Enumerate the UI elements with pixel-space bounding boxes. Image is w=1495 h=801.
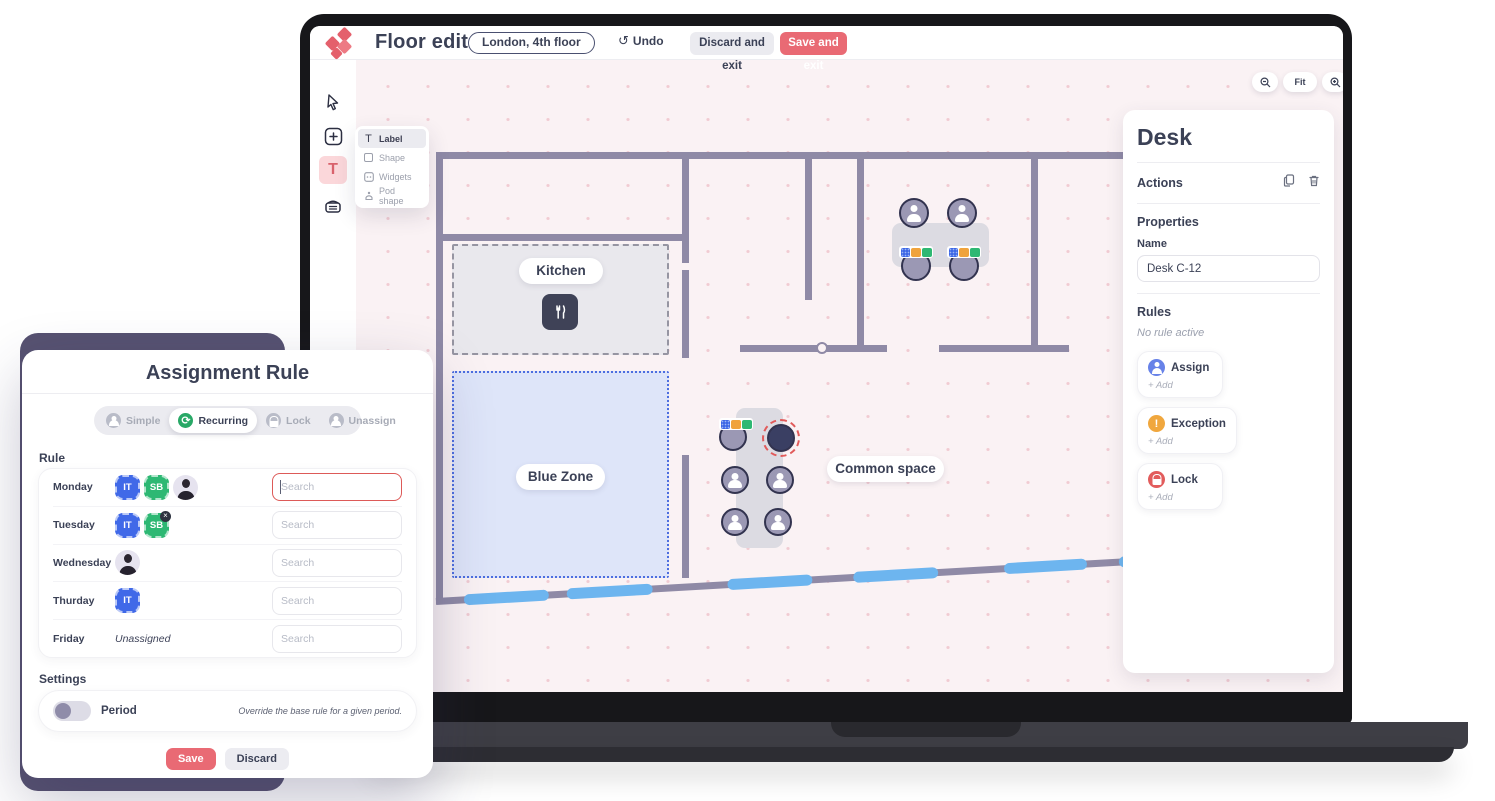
select-tool-button[interactable] — [319, 88, 347, 116]
modal-actions: Save Discard — [22, 748, 433, 770]
person-icon — [768, 468, 792, 492]
wall-room-divider — [439, 234, 687, 241]
flyout-item-widgets[interactable]: Widgets — [358, 167, 426, 186]
flyout-item-pod-shape[interactable]: Pod shape — [358, 186, 426, 205]
person-icon — [949, 200, 975, 226]
period-label: Period — [101, 705, 137, 717]
assignee-avatar[interactable] — [115, 550, 140, 575]
add-label: + Add — [1148, 492, 1212, 503]
discard-and-exit-button[interactable]: Discard and exit — [690, 32, 774, 55]
desk-tag-strip — [947, 246, 981, 258]
lock-rule-button[interactable]: Lock + Add — [1137, 463, 1223, 510]
rule-buttons: Assign + Add Exception + Add Lock + Add — [1137, 351, 1320, 510]
wall-vertical — [682, 159, 689, 263]
divider — [1137, 293, 1320, 294]
common-space-label: Common space — [835, 461, 936, 476]
app-screen: Kitchen Blue Zone Common space — [310, 26, 1343, 692]
assign-rule-button[interactable]: Assign + Add — [1137, 351, 1223, 398]
kitchen-label: Kitchen — [536, 263, 586, 278]
rule-row-monday: Monday IT SB — [53, 469, 402, 507]
label-icon: T — [363, 133, 374, 145]
divider — [22, 393, 433, 394]
desk-seat[interactable] — [766, 466, 794, 494]
properties-heading: Properties — [1137, 215, 1320, 229]
undo-button[interactable]: ↺Undo — [618, 34, 664, 49]
wall-horizontal — [939, 345, 1069, 352]
tab-unassign[interactable]: Unassign — [320, 408, 405, 433]
blue-zone-label: Blue Zone — [528, 469, 593, 484]
desk-tag-strip — [899, 246, 933, 258]
text-tool-button[interactable]: T — [319, 156, 347, 184]
kitchen-label-pill[interactable]: Kitchen — [519, 258, 603, 284]
add-label: + Add — [1148, 380, 1212, 391]
assignee-search-input[interactable] — [272, 511, 402, 539]
wall-vertical — [682, 455, 689, 578]
rule-row-wednesday: Wednesday — [53, 545, 402, 583]
save-button[interactable]: Save — [166, 748, 216, 770]
tab-simple[interactable]: Simple — [97, 408, 169, 433]
window-segment — [464, 589, 549, 605]
assignee-badge[interactable]: SB — [144, 475, 169, 500]
remove-badge-button[interactable]: × — [160, 511, 171, 522]
save-and-exit-button[interactable]: Save and exit — [780, 32, 847, 55]
exception-icon — [1148, 415, 1165, 432]
flyout-item-label[interactable]: T Label — [358, 129, 426, 148]
period-setting-card: Period Override the base rule for a give… — [38, 690, 417, 732]
rule-row-thursday: Thurday IT — [53, 582, 402, 620]
kitchen-cutlery-icon — [542, 294, 578, 330]
desk-tag-strip — [719, 418, 753, 430]
window-segment — [1004, 558, 1087, 574]
tab-lock[interactable]: Lock — [257, 408, 320, 433]
zoom-out-button[interactable] — [1252, 72, 1278, 92]
person-icon — [766, 510, 790, 534]
unassign-person-icon — [329, 413, 344, 428]
person-icon — [901, 200, 927, 226]
app-logo — [324, 28, 354, 58]
door-pivot — [816, 342, 828, 354]
delete-icon[interactable] — [1308, 174, 1320, 192]
desk-seat[interactable] — [947, 198, 977, 228]
modal-title: Assignment Rule — [22, 362, 433, 385]
window-segment — [566, 583, 652, 599]
assignee-badge[interactable]: IT — [115, 513, 140, 538]
floor-selector-pill[interactable]: London, 4th floor — [468, 32, 595, 54]
desk-name-input[interactable] — [1137, 255, 1320, 282]
assign-icon — [1148, 359, 1165, 376]
desk-properties-panel: Desk Actions Properties Name Rules No ru… — [1123, 110, 1334, 673]
rule-section-heading: Rule — [39, 451, 65, 465]
assignee-search-input[interactable] — [272, 587, 402, 615]
lock-icon — [1148, 471, 1165, 488]
recurring-icon — [178, 413, 193, 428]
pod-shape-icon — [363, 191, 374, 201]
assignee-search-input[interactable] — [272, 549, 402, 577]
unassigned-text: Unassigned — [115, 633, 170, 645]
assignee-badge[interactable]: SB× — [144, 513, 169, 538]
panel-title: Desk — [1137, 124, 1320, 151]
desk-seat[interactable] — [764, 508, 792, 536]
add-tool-button[interactable] — [319, 122, 347, 150]
assignment-rule-modal: Assignment Rule Simple Recurring Lock Un… — [22, 350, 433, 778]
desk-seat[interactable] — [721, 508, 749, 536]
wall-top — [436, 152, 1131, 159]
zoom-fit-button[interactable]: Fit — [1283, 72, 1317, 92]
assignee-search-input[interactable] — [272, 625, 402, 653]
simple-person-icon — [106, 413, 121, 428]
wall-vertical — [1031, 159, 1038, 350]
duplicate-icon[interactable] — [1283, 174, 1295, 192]
wall-horizontal — [740, 345, 887, 352]
widgets-icon — [363, 172, 374, 182]
weekly-rule-card: Monday IT SB Tuesday IT SB× Wednesday Th… — [38, 468, 417, 658]
lock-icon — [266, 413, 281, 428]
library-tool-button[interactable] — [319, 192, 347, 220]
person-icon — [723, 510, 747, 534]
wall-vertical — [682, 270, 689, 358]
assignee-search-input[interactable] — [272, 473, 402, 501]
insert-flyout-menu: T Label Shape Widgets Pod shape — [355, 126, 429, 208]
add-label: + Add — [1148, 436, 1226, 447]
laptop-base — [355, 722, 1468, 749]
wall-left — [436, 152, 443, 604]
toggle-knob — [55, 703, 71, 719]
editor-topbar: Floor editor London, 4th floor ↺Undo Dis… — [310, 26, 1343, 60]
common-space-label-pill[interactable]: Common space — [827, 456, 944, 482]
assignee-avatar[interactable] — [173, 475, 198, 500]
tab-recurring[interactable]: Recurring — [169, 408, 257, 433]
rule-row-friday: Friday Unassigned — [53, 620, 402, 657]
laptop-base-lip — [368, 747, 1454, 762]
rules-heading: Rules — [1137, 305, 1320, 319]
wall-vertical — [805, 159, 812, 300]
zoom-in-button[interactable] — [1322, 72, 1343, 92]
flyout-item-shape[interactable]: Shape — [358, 148, 426, 167]
exception-rule-button[interactable]: Exception + Add — [1137, 407, 1237, 454]
period-hint: Override the base rule for a given perio… — [238, 706, 402, 716]
divider — [1137, 203, 1320, 204]
name-field-label: Name — [1137, 238, 1320, 250]
blue-zone-label-pill[interactable]: Blue Zone — [516, 464, 605, 490]
text-caret — [280, 480, 281, 494]
assignee-badge[interactable]: IT — [115, 588, 140, 613]
actions-heading: Actions — [1137, 176, 1183, 190]
window-segment — [727, 574, 812, 590]
rule-type-tabs: Simple Recurring Lock Unassign — [94, 406, 361, 435]
wall-vertical — [857, 159, 864, 350]
desk-seat[interactable] — [899, 198, 929, 228]
discard-button[interactable]: Discard — [225, 748, 289, 770]
shape-icon — [363, 153, 374, 162]
divider — [1137, 162, 1320, 163]
desk-seat-selected[interactable] — [767, 424, 795, 452]
settings-section-heading: Settings — [39, 672, 86, 686]
desk-seat[interactable] — [721, 466, 749, 494]
rule-row-tuesday: Tuesday IT SB× — [53, 507, 402, 545]
period-toggle[interactable] — [53, 701, 91, 721]
laptop-notch — [831, 722, 1021, 737]
window-segment — [853, 567, 938, 583]
undo-icon: ↺ — [618, 34, 629, 49]
person-icon — [723, 468, 747, 492]
assignee-badge[interactable]: IT — [115, 475, 140, 500]
no-rule-text: No rule active — [1137, 327, 1320, 339]
zoom-controls: Fit — [1252, 72, 1343, 92]
